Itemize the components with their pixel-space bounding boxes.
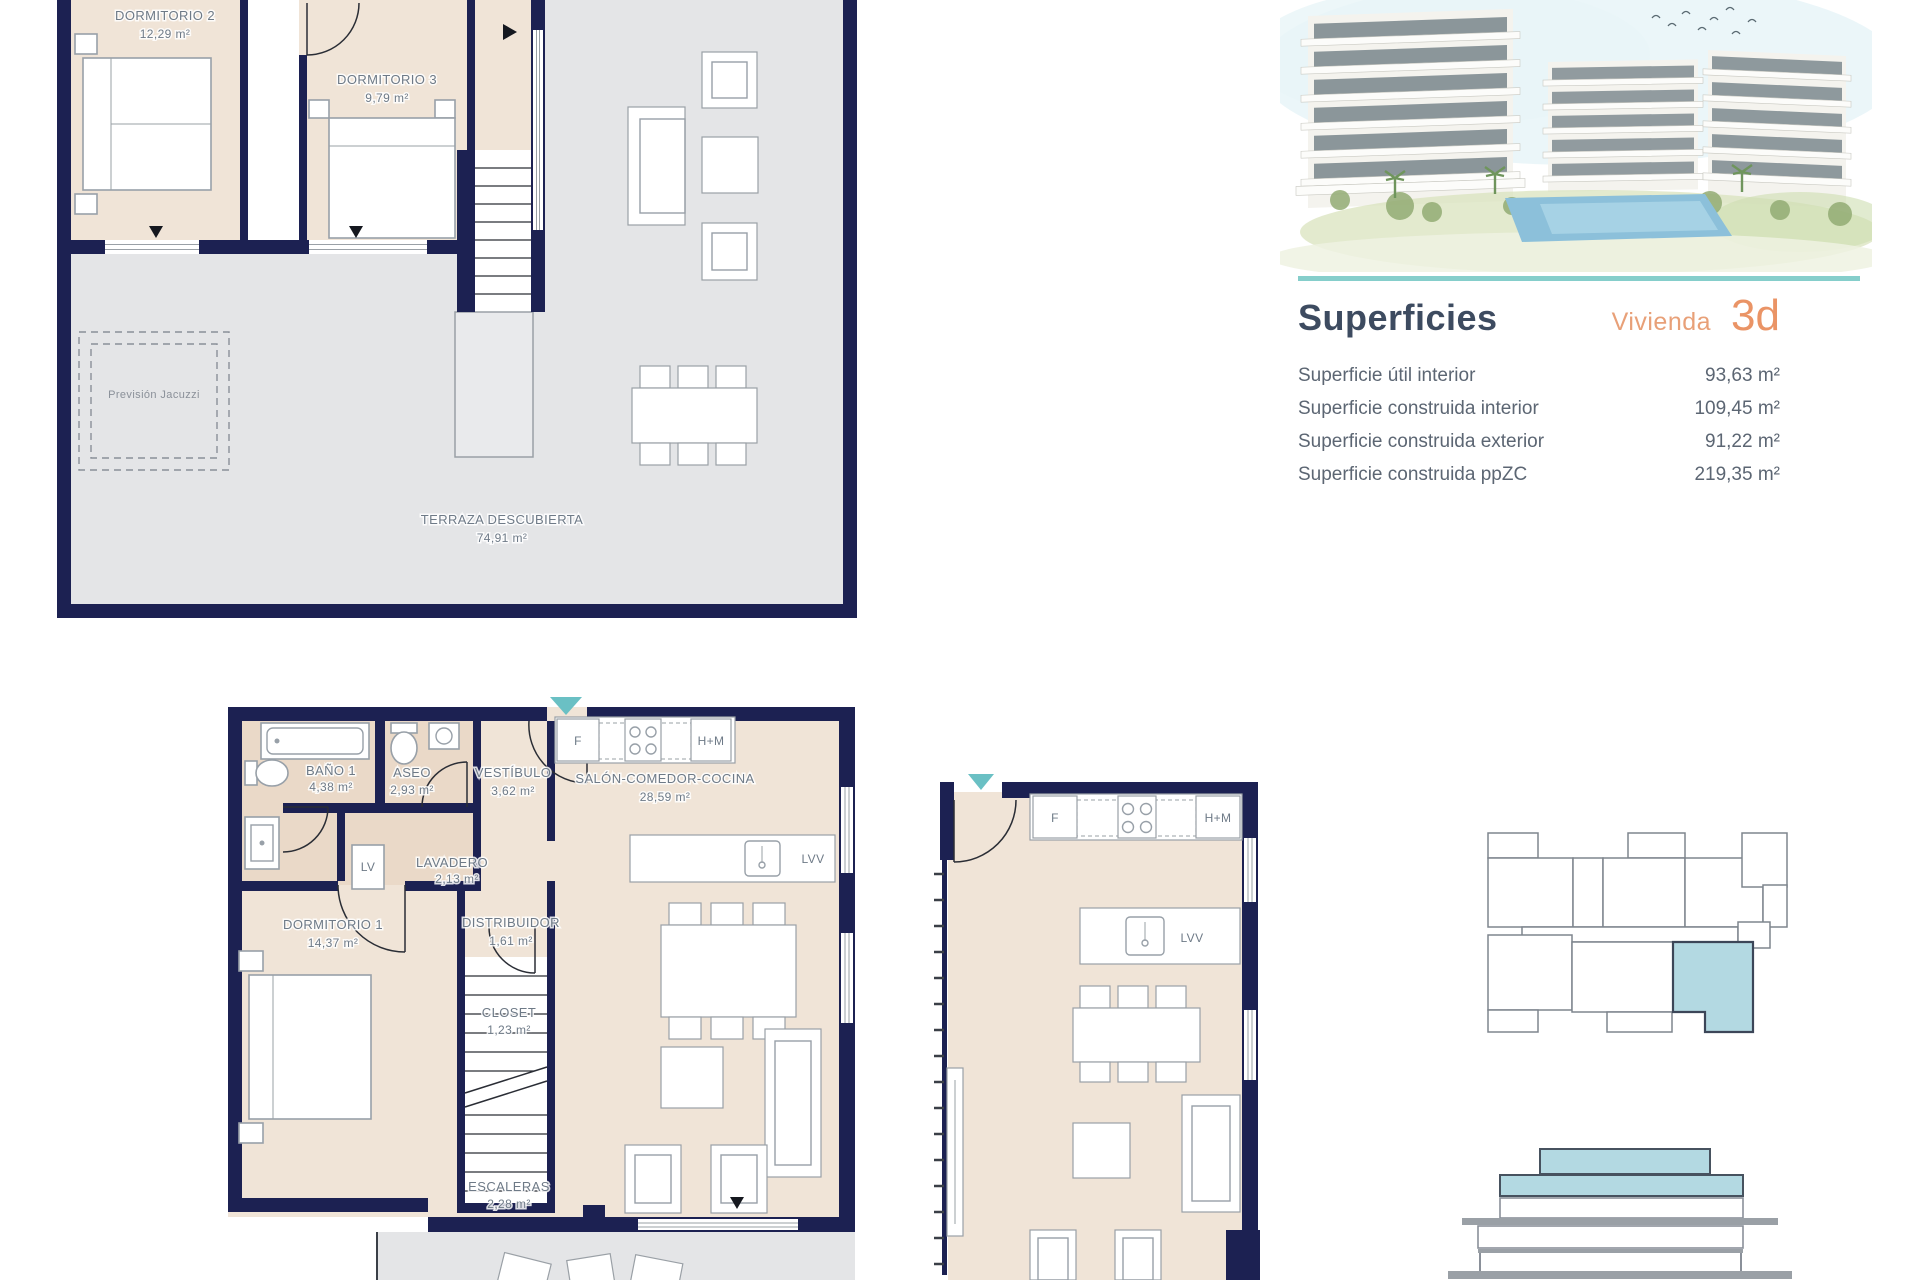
room-label-terraza: TERRAZA DESCUBIERTA (421, 512, 583, 527)
surface-value: 219,35 m² (1694, 458, 1780, 491)
section-highlight-top (1540, 1149, 1710, 1174)
hallway-floor (248, 0, 299, 240)
room-area-bano1: 4,38 m² (309, 780, 352, 794)
washer-lv: LV (352, 845, 384, 889)
room-area-dormitorio3: 9,79 m² (365, 91, 408, 105)
kitchen-salon2: F H+M (1030, 794, 1242, 840)
fridge-label-2: F (1051, 811, 1059, 825)
table-row: Superficie útil interior 93,63 m² (1298, 359, 1780, 392)
surfaces-table: Superficie útil interior 93,63 m² Superf… (1298, 359, 1780, 491)
toilet-aseo (391, 723, 417, 764)
unit-code: 3d (1731, 291, 1780, 341)
room-area-dormitorio2: 12,29 m² (140, 27, 191, 41)
surfaces-panel: Superficies Vivienda 3d Superficie útil … (1298, 276, 1860, 491)
room-area-aseo: 2,93 m² (390, 783, 433, 797)
table-row: Superficie construida ppZC 219,35 m² (1298, 458, 1780, 491)
upper-floor-plan: Previsión Jacuzzi DORMITORIO 2 12, (57, 0, 857, 625)
key-plan (1480, 830, 1910, 1090)
jacuzzi-label: Previsión Jacuzzi (108, 389, 200, 401)
room-area-dormitorio1: 14,37 m² (308, 936, 359, 950)
stair-void (455, 312, 533, 457)
stove-icon-2 (1118, 796, 1156, 838)
surface-value: 109,45 m² (1694, 392, 1780, 425)
room-label-closet: CLOSET (482, 1005, 536, 1020)
sink-aseo (429, 723, 459, 749)
room-label-dormitorio3: DORMITORIO 3 (337, 72, 437, 87)
dishwasher-label-main: LVV (802, 852, 825, 866)
page-title: Superficies (1298, 297, 1498, 339)
unit-identifier: Vivienda 3d (1612, 291, 1780, 341)
dishwasher-label-2: LVV (1181, 931, 1204, 945)
lower-terrace-floor (377, 1232, 855, 1280)
room-label-salon: SALÓN-COMEDOR-COCINA (575, 771, 754, 786)
room-area-terraza: 74,91 m² (477, 531, 528, 545)
section-highlight-lower (1500, 1175, 1743, 1196)
surface-label: Superficie construida exterior (1298, 425, 1544, 458)
floorplan-sheet: Previsión Jacuzzi DORMITORIO 2 12, (0, 0, 1920, 1280)
stove-icon (625, 719, 661, 761)
room-area-vestibulo: 3,62 m² (491, 784, 534, 798)
room-area-distribuidor: 1,61 m² (489, 934, 532, 948)
island-salon2: LVV (1080, 908, 1240, 964)
table-row: Superficie construida interior 109,45 m² (1298, 392, 1780, 425)
terrace-dining (632, 366, 757, 465)
room-area-lavadero: 2,13 m² (435, 872, 478, 886)
dining-salon2 (1073, 986, 1200, 1082)
bed-dormitorio3 (309, 100, 455, 238)
stairs-upper (475, 150, 531, 312)
surface-value: 93,63 m² (1705, 359, 1780, 392)
toilet-bano (245, 760, 288, 786)
surface-label: Superficie útil interior (1298, 359, 1475, 392)
island-main: LVV (630, 835, 835, 882)
room-label-vestibulo: VESTÍBULO (475, 765, 552, 780)
room-area-escaleras: 2,28 m² (487, 1197, 530, 1211)
oven-micro-label-2: H+M (1205, 811, 1232, 825)
fridge-label: F (574, 734, 582, 748)
surface-label: Superficie construida interior (1298, 392, 1539, 425)
oven-micro-label: H+M (698, 734, 725, 748)
building-render (1280, 0, 1872, 272)
surface-value: 91,22 m² (1705, 425, 1780, 458)
main-floor-plan: LV F H+M LVV (225, 695, 870, 1280)
table-row: Superficie construida exterior 91,22 m² (1298, 425, 1780, 458)
room-label-bano1: BAÑO 1 (306, 763, 356, 778)
dining-main (661, 903, 796, 1039)
entry-marker-salon2 (968, 774, 994, 790)
room-label-distribuidor: DISTRIBUIDOR (462, 915, 560, 930)
kitchen-main: F H+M (555, 717, 735, 763)
room-label-dormitorio1: DORMITORIO 1 (283, 917, 383, 932)
bathtub (261, 723, 369, 759)
room-label-aseo: ASEO (393, 765, 431, 780)
room-label-escaleras: ESCALERAS (468, 1179, 550, 1194)
building-middle (1543, 59, 1703, 192)
bed-dormitorio2 (75, 34, 211, 214)
key-plan-highlighted-unit (1673, 942, 1753, 1032)
sliding-panel (947, 1068, 963, 1236)
building-section (1440, 1148, 1880, 1280)
washer-lv-label: LV (361, 860, 376, 874)
sink-bano (245, 817, 279, 869)
building-left (1296, 8, 1525, 208)
room-label-dormitorio2: DORMITORIO 2 (115, 8, 215, 23)
salon-partial-plan: F H+M LVV (930, 770, 1270, 1280)
unit-label: Vivienda (1612, 308, 1711, 337)
bed-dormitorio1 (239, 951, 371, 1143)
room-area-closet: 1,23 m² (487, 1023, 530, 1037)
pool (1505, 194, 1732, 242)
section-columns (1480, 1253, 1741, 1271)
surface-label: Superficie construida ppZC (1298, 458, 1527, 491)
room-label-lavadero: LAVADERO (416, 855, 488, 870)
room-area-salon: 28,59 m² (640, 790, 691, 804)
accent-rule (1298, 276, 1860, 281)
building-right (1703, 50, 1851, 208)
